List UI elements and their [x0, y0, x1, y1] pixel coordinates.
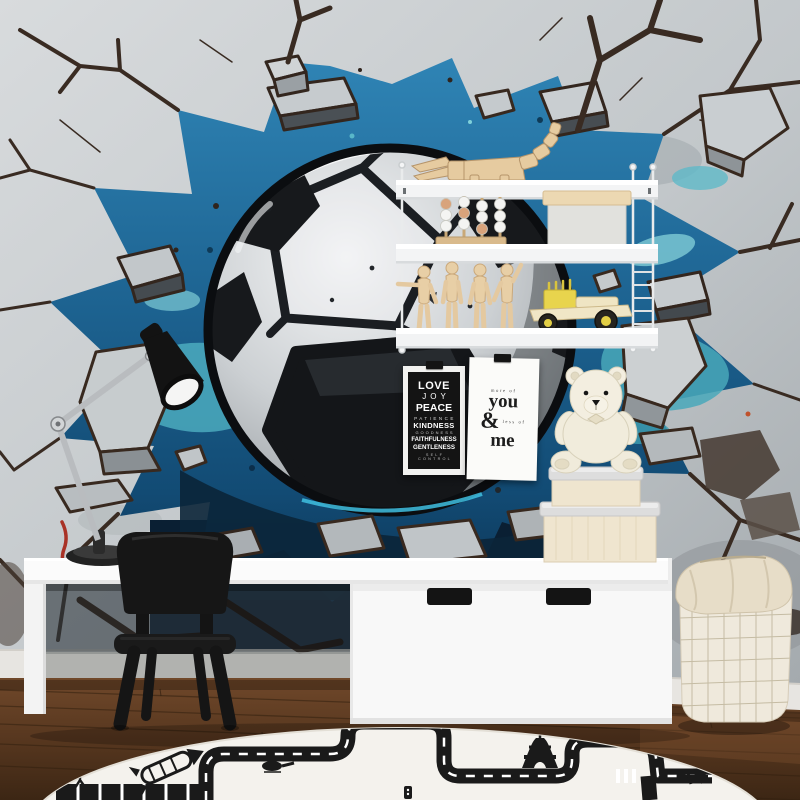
- parking-icon: [56, 784, 204, 800]
- kids-room-scene: LOVE JOY PEACE PATIENCE KINDNESS GOODNES…: [0, 0, 800, 800]
- poster-left-text: LOVE JOY PEACE PATIENCE KINDNESS GOODNES…: [408, 372, 460, 469]
- drawer-handle-right[interactable]: [546, 588, 591, 605]
- shelf-board-bottom: [396, 328, 658, 349]
- traffic-light-icon: [404, 786, 412, 799]
- drawer-front[interactable]: [350, 584, 672, 724]
- poster-line: PEACE: [416, 403, 452, 415]
- room-illustration: [0, 0, 800, 800]
- poster-line: GENTLENESS: [413, 445, 455, 452]
- poster-line: JOY: [422, 393, 450, 402]
- poster-big-text: me: [490, 432, 515, 451]
- poster-line: SELF CONTROL: [410, 453, 460, 462]
- poster-you-and-me: more of you & less of me: [467, 357, 540, 481]
- drawer-handle-left[interactable]: [427, 588, 472, 605]
- poster-line: FAITHFULNESS: [411, 437, 456, 444]
- poster-ampersand: &: [480, 411, 500, 432]
- poster-clip-left: [426, 361, 443, 369]
- poster-line: LOVE: [418, 380, 450, 392]
- poster-line: GOODNESS: [415, 431, 454, 435]
- storage-basket[interactable]: [676, 556, 794, 735]
- shelf-board-middle: [396, 244, 658, 264]
- poster-fruit-of-spirit: LOVE JOY PEACE PATIENCE KINDNESS GOODNES…: [403, 366, 465, 475]
- storage-box-shelf: [543, 191, 631, 247]
- poster-small-text: less of: [502, 419, 525, 425]
- poster-clip-right: [494, 354, 511, 362]
- poster-line: KINDNESS: [413, 422, 454, 430]
